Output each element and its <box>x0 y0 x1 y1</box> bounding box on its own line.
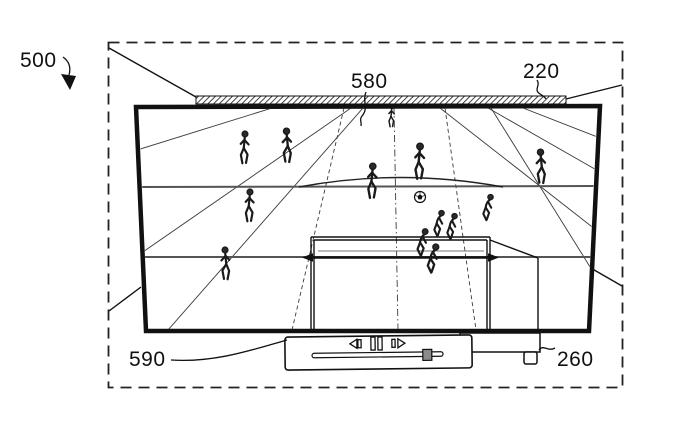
seek-slider-knob[interactable] <box>423 349 432 360</box>
soccer-ball <box>415 192 426 203</box>
room-line-top-left <box>109 48 196 97</box>
media-control-bar <box>285 335 472 370</box>
tv-stand-foot <box>524 352 537 364</box>
room-line-top-right <box>566 85 622 99</box>
label-580: 580 <box>351 70 388 93</box>
tv-top-bezel <box>196 96 566 104</box>
tv-screen-frame <box>136 106 600 331</box>
leader-590 <box>171 340 287 360</box>
label-590: 590 <box>129 348 166 371</box>
room-line-bottom-left <box>109 287 141 311</box>
patent-figure: 500 580 220 590 260 <box>0 0 684 427</box>
label-260: 260 <box>557 348 594 371</box>
leader-260 <box>539 348 555 350</box>
label-220: 220 <box>523 60 560 83</box>
leader-500 <box>63 57 70 75</box>
leader-500-arrowhead <box>61 74 76 90</box>
label-500: 500 <box>20 49 57 72</box>
